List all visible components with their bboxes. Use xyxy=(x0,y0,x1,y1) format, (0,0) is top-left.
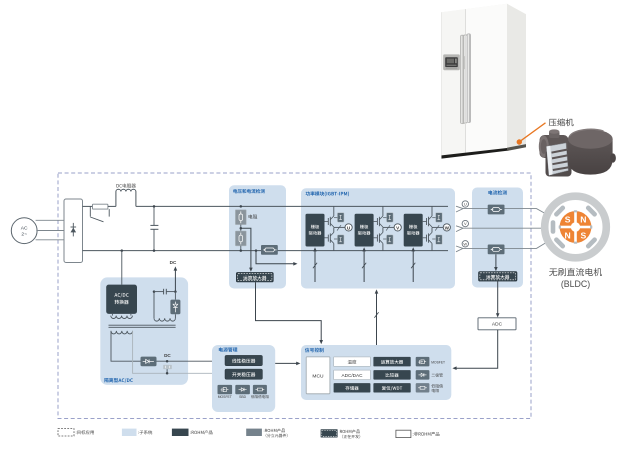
svg-text:W: W xyxy=(445,226,450,231)
svg-text:AC: AC xyxy=(21,225,28,231)
svg-text:N: N xyxy=(580,215,586,225)
svg-text:ADC/DAC: ADC/DAC xyxy=(341,373,363,378)
svg-text:U: U xyxy=(464,202,467,207)
svg-text:MCU: MCU xyxy=(312,374,324,380)
svg-text:DC: DC xyxy=(164,353,171,358)
svg-text:V: V xyxy=(464,221,467,226)
svg-text:S: S xyxy=(581,230,587,240)
svg-text:MOSFET: MOSFET xyxy=(431,361,445,365)
svg-text:S: S xyxy=(565,215,571,225)
svg-text:SBD: SBD xyxy=(239,395,247,399)
svg-text:N: N xyxy=(564,230,570,240)
svg-text:W: W xyxy=(463,241,467,246)
svg-text:MOSFET: MOSFET xyxy=(218,395,232,399)
svg-text:(BLDC): (BLDC) xyxy=(561,279,590,289)
svg-text:ADC: ADC xyxy=(492,322,503,328)
svg-text:2~: 2~ xyxy=(21,232,27,238)
svg-text:DC: DC xyxy=(170,260,177,265)
